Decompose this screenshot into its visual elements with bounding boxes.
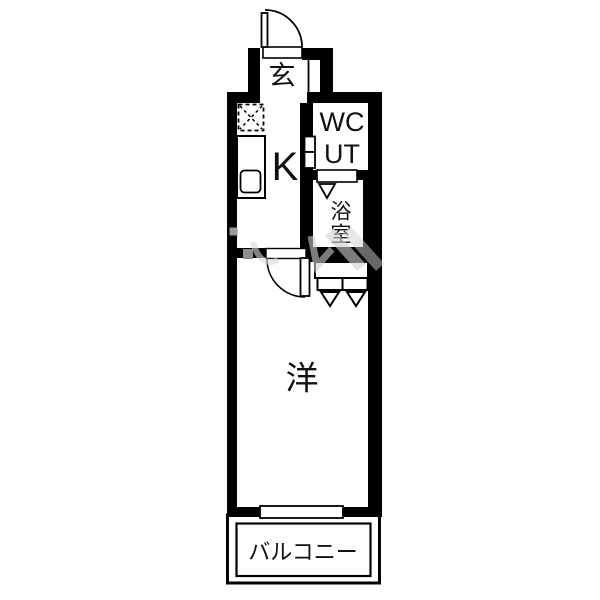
balcony-window-icon xyxy=(260,506,343,518)
watermark-stroke-5 xyxy=(230,228,238,236)
bathroom-label-char-1: 浴 xyxy=(331,201,352,224)
wc-door-marker-upper xyxy=(305,137,316,153)
room-door-opening xyxy=(266,249,306,259)
wall-genkan-left xyxy=(248,58,260,92)
kitchen-sink-icon xyxy=(241,171,261,193)
balcony-label: バルコニー xyxy=(248,540,358,565)
wall-right-outer xyxy=(368,103,382,517)
western-room-label: 洋 xyxy=(286,360,319,397)
entrance-label: 玄 xyxy=(269,61,296,91)
wall-top-left-segment xyxy=(227,92,260,103)
wc-label: WC xyxy=(320,107,365,137)
wall-bottom-left-segment xyxy=(227,507,260,517)
floorplan-canvas: 玄 K WC UT 浴 室 洋 バルコニー xyxy=(0,0,600,600)
refrigerator-space-icon xyxy=(239,105,264,131)
bathroom-door-track xyxy=(317,170,357,182)
wall-kitchen-wc-divider xyxy=(300,103,313,258)
entrance-door-leaf xyxy=(262,13,268,47)
wc-door-marker-lower xyxy=(305,152,316,168)
kitchen-fixtures xyxy=(237,105,265,199)
floorplan-drawing: 玄 K WC UT 浴 室 洋 バルコニー xyxy=(0,0,600,600)
wall-top-right-segment xyxy=(307,92,382,103)
room-door-leaf xyxy=(301,258,310,296)
wall-bottom-right-segment xyxy=(343,507,382,517)
entrance-threshold xyxy=(263,47,302,58)
kitchen-label: K xyxy=(272,145,299,189)
wall-left-outer xyxy=(227,103,237,517)
wall-genkan-right xyxy=(320,58,333,92)
utility-label: UT xyxy=(324,139,360,169)
watermark-stroke-6 xyxy=(243,249,253,259)
